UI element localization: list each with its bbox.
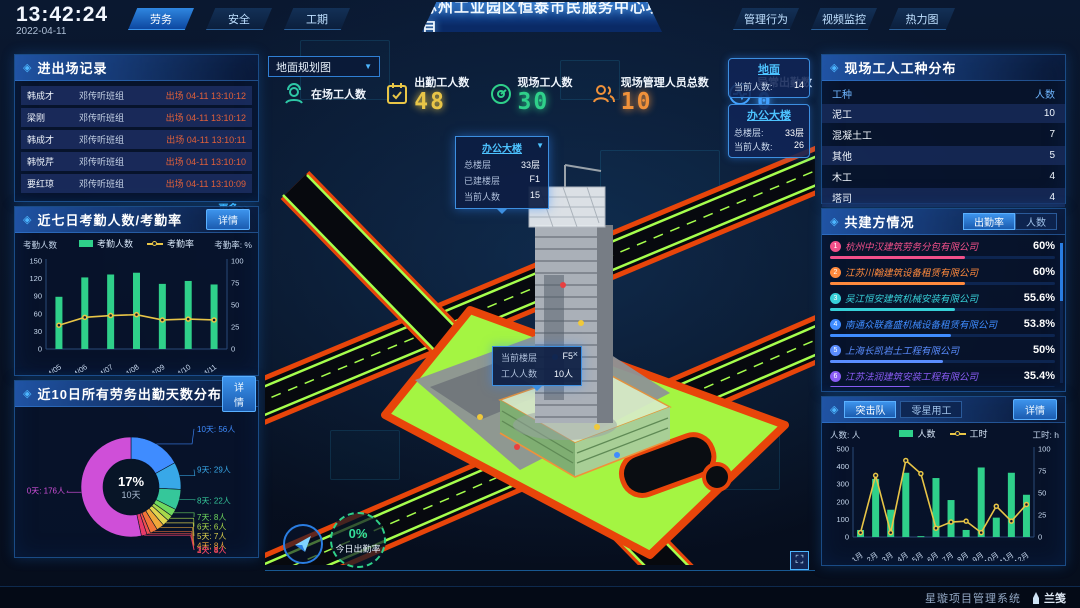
stat-2: 现场工人数30 [489,74,573,114]
squad_chart: 010020030040050002550751001月2月3月4月5月6月7月… [826,441,1062,561]
map-view-value: 地面规划图 [276,59,331,75]
partners-title: 共建方情况 [844,212,914,231]
partners-header: ◈ 共建方情况 出勤率人数 [822,209,1065,235]
location-value: 14 [794,80,804,93]
squad-tab-0[interactable]: 突击队 [844,401,896,418]
company-row[interactable]: 4南通众联鑫盛机械设备租赁有限公司53.8% [830,317,1055,342]
record-name: 梁刚 [27,111,79,124]
company-value: 50% [1033,344,1055,356]
worker-type: 泥工 [832,106,852,121]
date-display: 2022-04-11 [16,27,108,38]
calendar-check-icon [385,81,409,107]
worker-type: 木工 [832,169,852,184]
distribution_donut: 10天: 56人9天: 29人8天: 22人7天: 8人6天: 6人5天: 7人… [19,409,255,557]
logo-text: 兰笺 [1044,590,1066,606]
record-name: 韩悦芹 [27,155,79,168]
tooltip-row: 当前楼层F5 [493,350,581,366]
svg-text:04/08: 04/08 [120,362,140,373]
worker-type-col-count: 人数 [1035,86,1055,101]
people-icon [592,81,616,107]
svg-text:75: 75 [231,279,239,288]
record-event: 出场 04-11 13:10:11 [166,133,246,146]
tooltip-value: 33层 [521,158,540,171]
squad-detail-button[interactable]: 详情 [1013,399,1057,420]
distribution-panel: ◈ 近10日所有劳务出勤天数分布 详情 10天: 56人9天: 29人8天: 2… [14,380,259,558]
tooltip-key: 已建楼层 [464,174,500,187]
progress-fill [830,256,965,259]
stat-value: 30 [518,91,573,114]
record-event: 出场 04-11 13:10:12 [166,111,246,124]
tooltip-value: F1 [529,174,540,187]
scrollbar-thumb[interactable] [1060,243,1063,301]
table-row: 韩成才邓传听班组出场 04-11 13:10:11 [21,130,252,149]
nav-right: 管理行为视频监控热力图 [733,8,955,30]
table-row: 木工4 [822,167,1065,186]
fullscreen-icon[interactable]: ⛶ [790,551,809,570]
rank-badge: 5 [830,345,841,356]
partners-tab-1[interactable]: 人数 [1015,213,1057,230]
legend-bar-swatch [79,240,93,247]
progress-track [830,334,1055,337]
company-row[interactable]: 1杭州中汉建筑劳务分包有限公司60% [830,239,1055,264]
distribution-detail-button[interactable]: 详情 [222,376,256,412]
progress-fill [830,386,910,387]
worker-count: 10 [1044,108,1055,119]
record-name: 韩成才 [27,133,79,146]
worker-count: 4 [1049,171,1055,182]
company-value: 60% [1033,240,1055,252]
page-title-banner: 苏州工业园区恒泰市民服务中心项目 [422,2,662,32]
company-row[interactable]: 2江苏川翰建筑设备租赁有限公司60% [830,265,1055,290]
company-top: 2江苏川翰建筑设备租赁有限公司60% [830,265,1055,279]
tooltip-row: 工人人数10人 [493,366,581,382]
table-row: 要红琼邓传听班组出场 04-11 13:10:09 [21,174,252,193]
attendance-legend: 考勤人数考勤率 [15,237,258,250]
diamond-icon: ◈ [830,403,838,416]
nav-tab-right-1[interactable]: 视频监控 [811,8,877,30]
worker-type-table-head: 工种 人数 [822,81,1065,104]
stat-label: 现场工人数 [518,74,573,90]
stat-label: 在场工人数 [311,86,366,102]
svg-text:30: 30 [34,327,42,336]
table-row: 其他5 [822,146,1065,165]
svg-text:17%: 17% [118,474,144,489]
tooltip-row: 当前人数15 [456,189,548,205]
rank-badge: 4 [830,319,841,330]
attendance-gauge: 0% 今日出勤率 [330,512,386,568]
attendance-detail-button[interactable]: 详情 [206,209,250,230]
svg-text:3月: 3月 [880,550,895,561]
rank-badge: 6 [830,371,841,382]
svg-text:100: 100 [231,257,244,266]
attendance_chart: 0306090120150025507510004/0504/0604/0704… [19,253,255,373]
svg-text:0: 0 [38,345,42,354]
svg-text:150: 150 [29,257,42,266]
record-team: 邓传听班组 [79,111,166,124]
svg-text:400: 400 [836,462,849,471]
svg-text:90: 90 [34,292,42,301]
diamond-icon: ◈ [830,215,838,228]
nav-tab-right-2[interactable]: 热力图 [889,8,955,30]
table-row: 泥工10 [822,104,1065,123]
svg-text:60: 60 [34,309,42,318]
stat-text: 现场管理人员总数10 [621,74,709,114]
company-name: 江苏法润建筑安装工程有限公司 [845,369,1020,383]
svg-text:50: 50 [231,301,239,310]
svg-text:25: 25 [1038,511,1046,520]
table-row: 韩成才邓传听班组出场 04-11 13:10:12 [21,86,252,105]
svg-text:25: 25 [231,323,239,332]
record-event: 出场 04-11 13:10:12 [166,89,246,102]
diamond-icon: ◈ [23,213,31,226]
stat-value: 10 [621,91,709,114]
nav-left: 劳务安全工期 [128,8,350,30]
tooltip-key: 工人人数 [501,367,537,380]
location-key: 当前人数: [734,140,773,153]
company-top: 1杭州中汉建筑劳务分包有限公司60% [830,239,1055,253]
svg-text:8天: 22人: 8天: 22人 [197,496,231,505]
worker-type: 塔司 [832,190,852,205]
floor-tooltip-rows: 当前楼层F5工人人数10人 [493,350,581,382]
legend-line-swatch [950,433,966,435]
company-row[interactable]: 3吴江恒安建筑机械安装有限公司55.6% [830,291,1055,316]
nav-tab-left-2[interactable]: 工期 [284,8,350,30]
filter-icon[interactable]: ▼ [536,141,544,150]
legend-bar-swatch [899,430,913,437]
attendance-title: 近七日考勤人数/考勤率 [37,210,182,229]
rank-badge: 3 [830,293,841,304]
location-card-row: 当前人数:14 [734,79,804,93]
clock: 13:42:24 2022-04-11 [16,4,108,38]
tooltip-row: 总楼层33层 [456,157,548,173]
stat-0: 在场工人数 [282,74,366,114]
record-name: 要红琼 [27,177,79,190]
building-tooltip: 办公大楼 ▼ 总楼层33层已建楼层F1当前人数15 [455,136,549,209]
progress-track [830,282,1055,285]
diamond-icon: ◈ [23,387,31,400]
legend-label: 工时 [970,427,988,440]
location-key: 当前人数: [734,80,773,93]
svg-text:100: 100 [836,515,849,524]
stat-3: 现场管理人员总数10 [592,74,709,114]
partners-tabs: 出勤率人数 [963,213,1057,230]
svg-text:8月: 8月 [956,550,971,561]
svg-text:04/11: 04/11 [198,362,218,373]
progress-track [830,360,1055,363]
dashboard: 13:42:24 2022-04-11 劳务安全工期 苏州工业园区恒泰市民服务中… [0,0,1080,608]
svg-text:300: 300 [836,480,849,489]
legend-line-swatch [147,243,163,245]
table-row: 混凝土工7 [822,125,1065,144]
company-top: 5上海长凯岩土工程有限公司50% [830,343,1055,357]
company-value: 35.4% [1024,370,1055,382]
svg-text:9天: 29人: 9天: 29人 [197,466,231,475]
stat-text: 现场工人数30 [518,74,573,114]
svg-text:1天: 6人: 1天: 6人 [197,546,226,555]
diamond-icon: ◈ [23,61,31,74]
location-value: 26 [794,140,804,153]
worker-type: 其他 [832,148,852,163]
company-name: 吴江恒安建筑机械安装有限公司 [845,291,1020,305]
svg-text:5天: 7人: 5天: 7人 [197,532,226,541]
ground-card[interactable]: 地面当前人数:14 [728,58,810,98]
svg-text:0: 0 [845,533,849,542]
partners-panel: ◈ 共建方情况 出勤率人数 1杭州中汉建筑劳务分包有限公司60%2江苏川翰建筑设… [821,208,1066,392]
svg-text:7天: 8人: 7天: 8人 [197,513,226,522]
entry-exit-panel: ◈ 进出场记录 韩成才邓传听班组出场 04-11 13:10:12梁刚邓传听班组… [14,54,259,202]
system-name: 星璇项目管理系统 [925,590,1021,606]
location-card-title: 办公大楼 [734,107,804,123]
tooltip-key: 当前楼层 [501,351,537,364]
svg-text:5月: 5月 [910,550,925,561]
svg-text:04/10: 04/10 [172,362,192,373]
svg-text:120: 120 [29,274,42,283]
worker-count: 4 [1049,192,1055,203]
svg-text:0: 0 [231,345,235,354]
logo-icon [1031,592,1041,604]
svg-text:50: 50 [1038,489,1046,498]
svg-text:04/05: 04/05 [43,362,63,373]
compass-button[interactable] [283,524,323,564]
worker-type: 混凝土工 [832,127,872,142]
company-name: 杭州中汉建筑劳务分包有限公司 [845,239,1029,253]
progress-fill [830,360,943,363]
svg-text:10天: 10天 [121,490,140,500]
partners-tab-0[interactable]: 出勤率 [963,213,1015,230]
footer: 星璇项目管理系统 兰笺 [0,586,1080,608]
svg-text:100: 100 [1038,445,1051,454]
company-row[interactable]: 5上海长凯岩土工程有限公司50% [830,343,1055,368]
svg-text:500: 500 [836,445,849,454]
office-building-card[interactable]: 办公大楼总楼层:33层当前人数:26 [728,104,810,158]
stat-label: 出勤工人数 [414,74,469,90]
entry-exit-header: ◈ 进出场记录 [15,55,258,81]
page-title: 苏州工业园区恒泰市民服务中心项目 [422,0,662,38]
legend-item: 工时 [950,427,988,440]
nav-tab-right-0[interactable]: 管理行为 [733,8,799,30]
record-team: 邓传听班组 [79,89,166,102]
record-team: 邓传听班组 [79,177,166,190]
close-icon[interactable]: × [573,349,578,359]
paper-plane-icon [292,533,314,555]
squad-panel: ◈ 突击队零星用工 详情 人数: 人 工时: h 人数工时 0100200300… [821,396,1066,566]
distribution-title: 近10日所有劳务出勤天数分布 [37,384,221,403]
tooltip-value: 10人 [554,367,573,380]
entry-exit-title: 进出场记录 [37,58,107,77]
worker-icon [282,81,306,107]
stat-text: 出勤工人数48 [414,74,469,114]
svg-text:6天: 6人: 6天: 6人 [197,523,226,532]
company-top: 4南通众联鑫盛机械设备租赁有限公司53.8% [830,317,1055,331]
company-value: 55.6% [1024,292,1055,304]
company-name: 上海长凯岩土工程有限公司 [845,343,1029,357]
progress-track [830,256,1055,259]
stat-label: 现场管理人员总数 [621,74,709,90]
attendance-panel: ◈ 近七日考勤人数/考勤率 详情 考勤人数 考勤率: % 考勤人数考勤率 030… [14,206,259,376]
gauge-value: 0% [349,526,368,541]
table-row: 塔司4 [822,188,1065,207]
worker-count: 5 [1049,150,1055,161]
svg-text:12月: 12月 [1013,550,1031,561]
svg-text:1月: 1月 [850,550,865,561]
tooltip-key: 总楼层 [464,158,491,171]
chevron-down-icon: ▼ [364,62,372,71]
company-top: 6江苏法润建筑安装工程有限公司35.4% [830,369,1055,383]
location-card-row: 总楼层:33层 [734,125,804,139]
svg-text:0天: 176人: 0天: 176人 [27,487,65,496]
record-team: 邓传听班组 [79,133,166,146]
table-row: 韩悦芹邓传听班组出场 04-11 13:10:10 [21,152,252,171]
legend-label: 考勤人数 [97,237,133,250]
attendance-header: ◈ 近七日考勤人数/考勤率 详情 [15,207,258,233]
svg-text:200: 200 [836,497,849,506]
progress-fill [830,334,951,337]
legend-label: 人数 [917,427,935,440]
record-team: 邓传听班组 [79,155,166,168]
distribution-donut: 10天: 56人9天: 29人8天: 22人7天: 8人6天: 6人5天: 7人… [19,409,255,562]
company-name: 南通众联鑫盛机械设备租赁有限公司 [845,317,1020,331]
squad-chart: 010020030040050002550751001月2月3月4月5月6月7月… [826,441,1062,566]
svg-text:10天: 56人: 10天: 56人 [197,425,235,434]
company-name: 江苏川翰建筑设备租赁有限公司 [845,265,1029,279]
worker-type-col-type: 工种 [832,86,852,101]
company-value: 60% [1033,266,1055,278]
location-card-row: 当前人数:26 [734,139,804,153]
stat-text: 在场工人数 [311,86,366,102]
svg-text:2月: 2月 [865,550,880,561]
legend-dot [152,241,157,246]
building-tooltip-rows: 总楼层33层已建楼层F1当前人数15 [456,157,548,205]
squad-header: ◈ 突击队零星用工 详情 [822,397,1065,423]
svg-text:04/07: 04/07 [94,362,114,373]
tooltip-value: 15 [530,190,540,203]
table-row: 梁刚邓传听班组出场 04-11 13:10:12 [21,108,252,127]
location-value: 33层 [785,126,804,139]
scrollbar[interactable] [1060,243,1063,383]
distribution-header: ◈ 近10日所有劳务出勤天数分布 详情 [15,381,258,407]
legend-dot [955,431,960,436]
progress-fill [830,282,965,285]
worker-count: 7 [1049,129,1055,140]
stat-1: 出勤工人数48 [385,74,469,114]
svg-text:0: 0 [1038,533,1042,542]
map-divider [265,570,815,571]
record-event: 出场 04-11 13:10:10 [166,155,246,168]
company-value: 53.8% [1024,318,1055,330]
entry-exit-list: 韩成才邓传听班组出场 04-11 13:10:12梁刚邓传听班组出场 04-11… [15,81,258,198]
squad-tab-1[interactable]: 零星用工 [900,401,962,418]
gauge-icon [489,81,513,107]
company-top: 3吴江恒安建筑机械安装有限公司55.6% [830,291,1055,305]
nav-tab-left-1[interactable]: 安全 [206,8,272,30]
svg-text:04/06: 04/06 [68,362,88,373]
rank-badge: 1 [830,241,841,252]
worker-type-title: 现场工人工种分布 [844,58,956,77]
location-card-title: 地面 [734,61,804,77]
diamond-icon: ◈ [830,61,838,74]
floor-tooltip: × 当前楼层F5工人人数10人 [492,346,582,386]
worker-type-header: ◈ 现场工人工种分布 [822,55,1065,81]
time-display: 13:42:24 [16,4,108,26]
progress-track [830,308,1055,311]
rank-badge: 2 [830,267,841,278]
svg-text:75: 75 [1038,467,1046,476]
tooltip-key: 当前人数 [464,190,500,203]
squad-legend: 人数工时 [822,427,1065,440]
record-event: 出场 04-11 13:10:09 [166,177,246,190]
progress-fill [830,308,955,311]
gauge-label: 今日出勤率 [335,542,380,555]
worker-type-panel: ◈ 现场工人工种分布 工种 人数 泥工10混凝土工7其他5木工4塔司4 [821,54,1066,204]
building-tooltip-title[interactable]: 办公大楼 [456,137,548,157]
legend-label: 考勤率 [167,237,194,250]
partners-list: 1杭州中汉建筑劳务分包有限公司60%2江苏川翰建筑设备租赁有限公司60%3吴江恒… [822,235,1065,387]
attendance-chart: 0306090120150025507510004/0504/0604/0704… [19,253,255,378]
svg-text:4月: 4月 [895,550,910,561]
tooltip-row: 已建楼层F1 [456,173,548,189]
pond-circle [704,464,730,490]
nav-tab-left-0[interactable]: 劳务 [128,8,194,30]
legend-item: 考勤率 [147,237,194,250]
company-row[interactable]: 6江苏法润建筑安装工程有限公司35.4% [830,369,1055,387]
legend-item: 考勤人数 [79,237,133,250]
progress-track [830,386,1055,387]
tooltip-value: F5 [562,351,573,364]
stat-value: 48 [414,91,469,114]
legend-item: 人数 [899,427,935,440]
svg-text:7月: 7月 [940,550,955,561]
svg-text:04/09: 04/09 [146,362,166,373]
record-name: 韩成才 [27,89,79,102]
svg-text:6月: 6月 [925,550,940,561]
location-key: 总楼层: [734,126,764,139]
squad-tabs: 突击队零星用工 [844,401,962,418]
worker-type-table-body: 泥工10混凝土工7其他5木工4塔司4 [822,104,1065,207]
logo: 兰笺 [1031,590,1066,606]
